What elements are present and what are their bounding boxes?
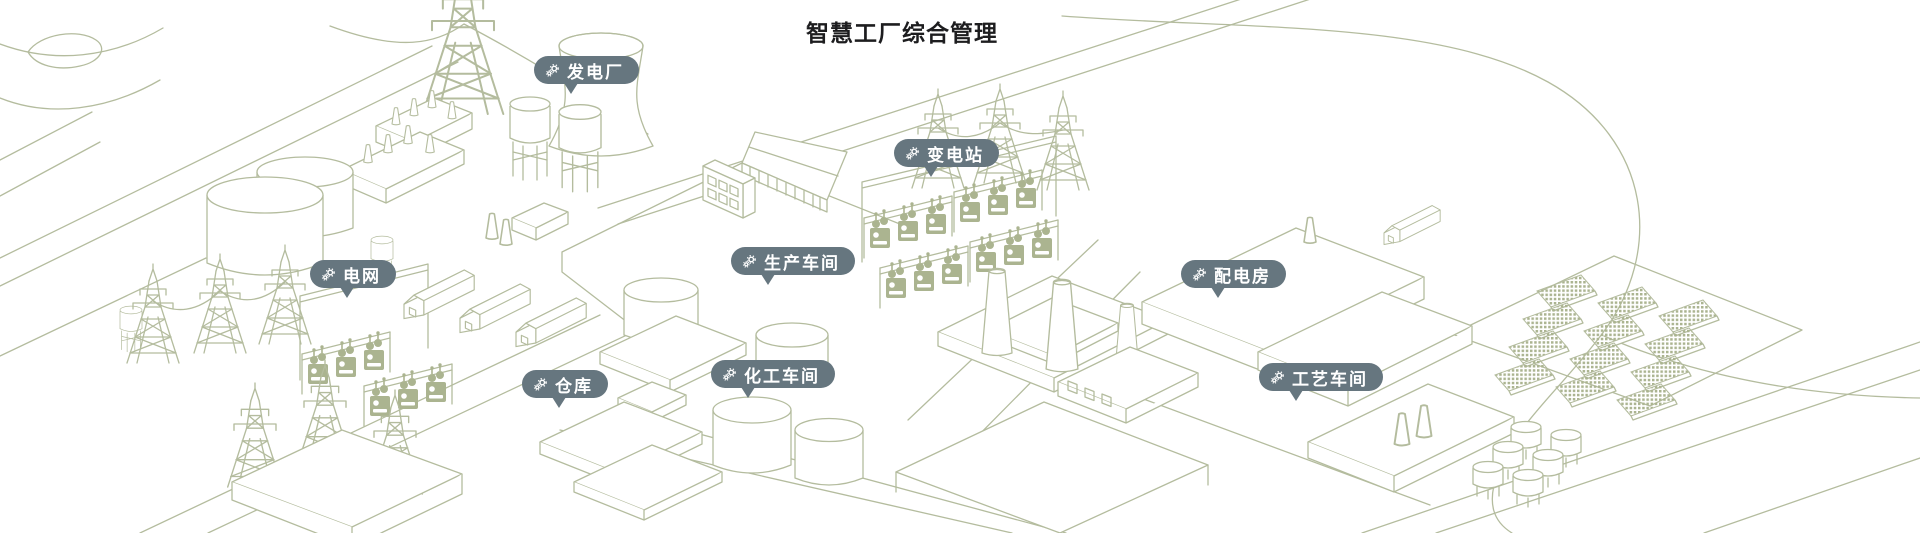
pin-distribution-room[interactable]: 配电房	[1181, 260, 1286, 288]
pin-label: 仓库	[555, 372, 593, 397]
pin-power-grid[interactable]: 电网	[310, 260, 396, 288]
illustration-warehouse-sheds	[404, 203, 586, 347]
pin-label: 发电厂	[567, 58, 624, 83]
gears-icon	[321, 267, 336, 282]
illustration-warehouse-slabs	[540, 382, 722, 520]
pin-label: 电网	[343, 262, 381, 287]
gears-icon	[905, 146, 920, 161]
page-title: 智慧工厂综合管理	[806, 14, 998, 48]
gears-icon	[722, 367, 737, 382]
pin-chemical-workshop[interactable]: 化工车间	[711, 360, 835, 388]
pin-label: 配电房	[1214, 262, 1271, 287]
pin-production-workshop[interactable]: 生产车间	[731, 247, 855, 275]
pin-label: 生产车间	[764, 249, 840, 274]
gears-icon	[1270, 370, 1285, 385]
gears-icon	[533, 377, 548, 392]
illustration-bottom-left-building	[232, 430, 462, 533]
illustration-production-workshop	[703, 132, 847, 218]
pin-process-workshop[interactable]: 工艺车间	[1259, 363, 1383, 391]
illustration-chimneys	[938, 268, 1198, 423]
pin-label: 化工车间	[744, 362, 820, 387]
pin-warehouse[interactable]: 仓库	[522, 370, 608, 398]
pin-power-plant[interactable]: 发电厂	[534, 56, 639, 84]
illustration-process-workshop	[1308, 384, 1581, 507]
pin-label: 工艺车间	[1292, 365, 1368, 390]
smart-factory-map: 智慧工厂综合管理 发电厂 变电站 电网 生产车间 配电房 仓库 化工车间 工艺车…	[0, 0, 1920, 533]
pin-substation[interactable]: 变电站	[894, 139, 999, 167]
factory-illustration	[0, 0, 1920, 533]
illustration-substation	[862, 84, 1089, 308]
pin-label: 变电站	[927, 141, 984, 166]
illustration-bottom-center-building	[896, 402, 1208, 533]
gears-icon	[1192, 267, 1207, 282]
illustration-power-grid	[120, 157, 452, 494]
gears-icon	[545, 63, 560, 78]
gears-icon	[742, 254, 757, 269]
